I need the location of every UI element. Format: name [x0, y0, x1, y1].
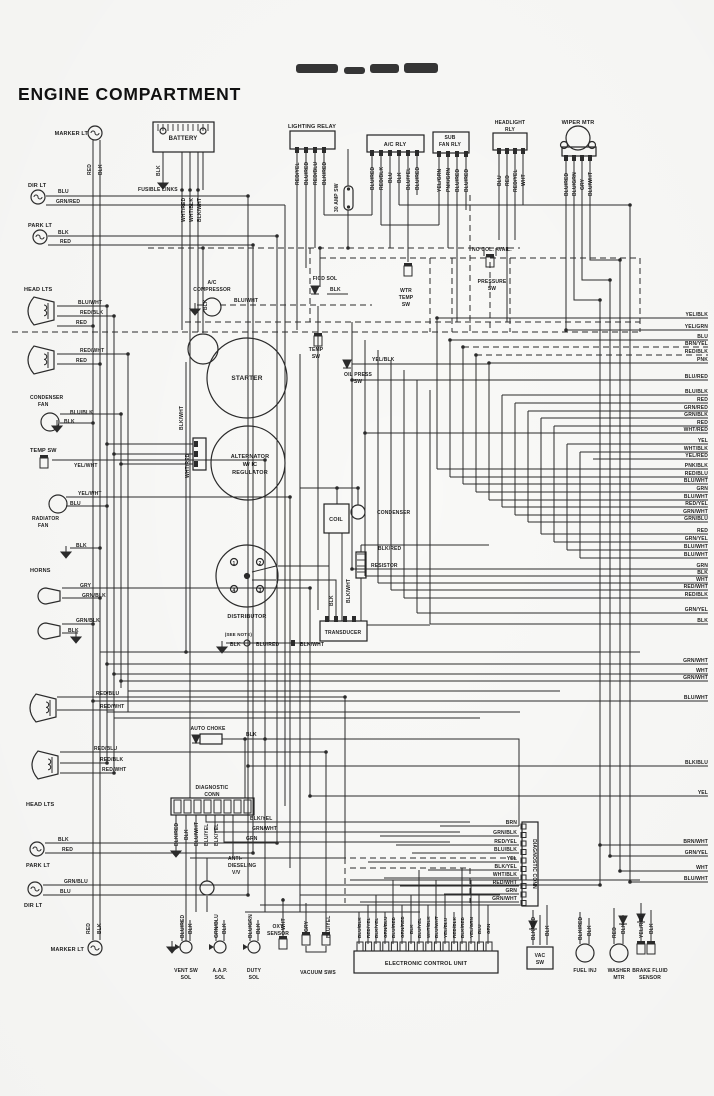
junction-dot — [608, 278, 612, 282]
wire-label: RED — [60, 239, 71, 245]
diagnostic-conn-left-box — [171, 798, 254, 815]
wire-label: BLK/YEL — [250, 816, 272, 822]
wire-label: TEMP SW — [30, 448, 57, 454]
wire-label: BLU/WHT — [434, 916, 439, 938]
connector-pin — [397, 150, 401, 156]
wire-label: FAN RLY — [439, 142, 461, 148]
wire-label: HEAD LTS — [26, 802, 54, 808]
connector-pin — [352, 616, 356, 622]
wire-label: PRESSURE — [478, 279, 507, 285]
redacted-header — [404, 63, 438, 73]
connector-cell — [477, 942, 483, 951]
wire-label: BLU/YEL — [406, 168, 412, 190]
wire-label: RED — [612, 927, 618, 938]
connector-pin — [334, 616, 338, 622]
lighting-relay-box — [290, 131, 335, 149]
wire-label: BLK — [68, 628, 79, 634]
wire-label: SENSOR — [639, 975, 661, 981]
junction-dot — [119, 679, 123, 683]
connector-cell — [426, 942, 432, 951]
wire-label: BLU/WHT — [684, 544, 708, 550]
wire-label: GRN/RED — [56, 199, 80, 205]
wire-label: RED — [697, 528, 708, 534]
junction-dot — [598, 298, 602, 302]
wire-label: PNK/GRN — [446, 168, 452, 192]
wire-label: REGULATOR — [232, 470, 268, 476]
headlight-relay-box — [493, 133, 527, 150]
wire-label: GRN/WHT — [252, 826, 277, 832]
wire-label: GRN/WHT — [683, 509, 708, 515]
wire-label: BLU/WHT — [234, 298, 258, 304]
connector-cell — [460, 942, 466, 951]
wire-label: BRN/YEL — [685, 341, 708, 347]
diode-icon — [343, 360, 351, 368]
wire-label: GRN/BLU — [684, 516, 708, 522]
junction-dot — [112, 314, 116, 318]
wire-label: 4 — [233, 588, 236, 594]
wire-label: BLK — [621, 923, 627, 934]
wire-label: FUEL INJ — [573, 968, 596, 974]
connector-cell — [486, 942, 492, 951]
connector-cell — [400, 942, 406, 951]
wire-label: CONDENSER — [30, 395, 64, 401]
wire-label: COIL — [329, 517, 343, 523]
wire-label: 3 — [259, 588, 262, 594]
wire-label: BLU/WHT — [684, 478, 708, 484]
wire-label: RED/BLU — [313, 161, 319, 185]
wire-label: YEL/GRN — [685, 324, 709, 330]
wire-label: WHT/BLK — [493, 872, 517, 878]
wire-label: HEAD LTS — [24, 287, 52, 293]
junction-dot — [363, 431, 367, 435]
wire-label: DIR LT — [24, 903, 43, 909]
junction-dot — [628, 203, 632, 207]
lamp-filament — [91, 131, 99, 135]
switch-plug-cap — [647, 941, 655, 944]
junction-dot — [246, 764, 250, 768]
junction-dot — [188, 188, 192, 192]
beam-coil — [44, 303, 48, 319]
ground-icon — [217, 641, 227, 653]
junction-dot — [275, 234, 279, 238]
wire-label: BLK — [222, 923, 228, 934]
switch-plug-icon — [404, 266, 412, 276]
wire-label: RED/WHT — [100, 704, 124, 710]
wire-label: DISTRIBUTOR — [227, 614, 266, 620]
switch-plug-icon — [637, 944, 645, 954]
wire-label: BLU/RED — [685, 374, 709, 380]
wire — [582, 161, 610, 280]
wire-label: BLK — [330, 287, 341, 293]
wire-label: RED/YEL — [494, 839, 517, 845]
wire-label: BLK — [76, 543, 87, 549]
junction-dot — [105, 442, 109, 446]
wire-label: 2 — [259, 561, 262, 567]
wire-label: BLU/RED — [415, 166, 421, 190]
wire-label: GRN — [246, 836, 258, 842]
solenoid-arrow — [175, 944, 180, 950]
wire-label: W/ IC — [243, 462, 258, 468]
wire-label: GRN/YEL — [685, 850, 708, 856]
wire-label: TEMP — [309, 347, 324, 353]
junction-dot — [335, 486, 339, 490]
wire-label: GRN/YEL — [685, 607, 708, 613]
junction-dot — [346, 246, 350, 250]
wire-label: BLK/RED — [378, 546, 402, 552]
connector-cell — [391, 942, 397, 951]
wire-label: RED — [62, 847, 73, 853]
wire-label: GRN — [696, 486, 708, 492]
wire-label: YEL/BLK — [686, 312, 709, 318]
wire-label: BLK — [329, 595, 335, 606]
wire-label: BLU/WHT — [684, 695, 708, 701]
wire-label: BLU/YEL — [204, 824, 210, 846]
wire-label: BLU/WHT — [684, 552, 708, 558]
beam-coil — [48, 757, 52, 773]
wire-label: 30 AMP SW — [334, 183, 340, 212]
wire — [206, 815, 470, 822]
wiring-diagram-page: ENGINE COMPARTMENT MARKER LTREDBLKBATTER… — [0, 0, 714, 1096]
wire-label: WHT — [696, 668, 708, 674]
junction-dot — [318, 246, 322, 250]
wire-label: BLK — [409, 924, 414, 934]
wire-label: BLU/YEL — [326, 916, 332, 938]
connector-pin — [406, 150, 410, 156]
wire-label: BLK/WHT — [300, 642, 324, 648]
sealed-beam-icon — [28, 297, 54, 325]
wire-label: PARK LT — [28, 223, 53, 229]
connector-pin — [588, 155, 592, 161]
wire-label: RED/BLU — [94, 746, 118, 752]
wire-label: CONDENSER — [377, 510, 411, 516]
wire-label: BLU/BLK — [685, 389, 708, 395]
wire-label: BLK — [58, 837, 69, 843]
switch-plug-icon — [40, 458, 48, 468]
solenoid-arrow — [243, 944, 248, 950]
junction-dot — [180, 188, 184, 192]
wire-label: SW — [488, 286, 496, 292]
connector-cell — [469, 942, 475, 951]
wire-label: BLK — [397, 172, 403, 183]
junction-dot — [618, 258, 622, 262]
wire-label: SOL — [215, 975, 226, 981]
page-title: ENGINE COMPARTMENT — [18, 84, 241, 104]
wire-label: BLU/RED — [564, 172, 570, 196]
wire-label: RED/BLU — [685, 471, 709, 477]
wire-label: BLU/GRN — [572, 172, 578, 196]
junction-dot — [564, 328, 568, 332]
wire-label: BRN/WHT — [683, 839, 708, 845]
wire-label: GRN/BLU — [214, 914, 220, 938]
fuel-injector-body — [576, 944, 594, 962]
wire-label: RED — [86, 923, 92, 934]
wire-label: BLK/RED — [531, 916, 537, 940]
wire-label: BLK — [697, 618, 708, 624]
connector-cell — [366, 942, 372, 951]
diagram-layer: MARKER LTREDBLKBATTERYFUSIBLE LINKSBLKWH… — [12, 63, 708, 981]
wire-label: BLK/YEL — [495, 864, 517, 870]
wire-label: GRN/WHT — [492, 896, 517, 902]
fuse-end — [347, 187, 350, 190]
wire-label: BLK — [58, 230, 69, 236]
auto-choke-box — [200, 734, 222, 744]
wire-label: ELECTRONIC CONTROL UNIT — [385, 961, 468, 967]
solenoid-arrow — [209, 944, 214, 950]
switch-plug-cap — [314, 333, 322, 336]
distributor-center — [245, 574, 250, 579]
wire-label: RED/YEL — [513, 169, 519, 192]
connector-pin — [322, 147, 326, 153]
wire-label: (SEE NOTE) — [225, 632, 253, 637]
solenoid-icon — [180, 941, 192, 953]
wire-label: WHT — [281, 918, 287, 930]
wire-label: GRY — [580, 178, 586, 190]
wire-label: MTR — [613, 975, 625, 981]
connector-cell — [234, 800, 241, 813]
wire-label: BLU/RED — [455, 168, 461, 192]
wire-label: HORNS — [30, 568, 51, 574]
wire-label: BLU — [60, 889, 71, 895]
junction-dot — [487, 361, 491, 365]
wire-label: BLU — [477, 924, 482, 934]
junction-dot — [435, 316, 439, 320]
wire-label: RED/WHT — [493, 880, 517, 886]
connector-pin — [572, 155, 576, 161]
wire-label: A/C RLY — [384, 142, 407, 148]
wire-label: YEL/BLU — [443, 918, 448, 938]
connector-pin — [505, 148, 509, 154]
wire-label: BLK — [98, 164, 104, 175]
connector-pin — [325, 616, 329, 622]
wire-label: TEMP — [399, 295, 414, 301]
wire-label: GRN/BLU — [64, 879, 88, 885]
lamp-filament — [34, 195, 42, 199]
junction-dot — [281, 898, 285, 902]
wire-label: SW — [402, 302, 410, 308]
wire-label: ALTERNATOR — [231, 454, 269, 460]
junction-dot — [598, 843, 602, 847]
wire-label: CONN — [204, 792, 220, 798]
wire-label: WHT/RED — [181, 197, 187, 222]
wire-label: WASHER — [608, 968, 631, 974]
connector-pin — [194, 451, 198, 457]
wire-label: BLK — [697, 570, 708, 576]
wire-label: DUTY — [247, 968, 262, 974]
wire-label: WHT/BLK — [684, 446, 708, 452]
wire-label: GRY — [304, 920, 310, 932]
junction-dot — [105, 304, 109, 308]
junction-dot — [201, 246, 205, 250]
junction-dot — [126, 352, 130, 356]
junction-dot — [308, 586, 312, 590]
junction-dot — [119, 412, 123, 416]
junction-dot — [98, 362, 102, 366]
wire-label: PNK — [697, 357, 708, 363]
connector-cell — [357, 942, 363, 951]
wire-label: GRN/YEL — [685, 536, 708, 542]
wire-label: RED — [76, 358, 87, 364]
sealed-beam-icon — [30, 694, 56, 722]
junction-dot — [91, 421, 95, 425]
wire-label: GRN/RED — [400, 916, 405, 938]
wire-label: RED/BLK — [685, 349, 709, 355]
connector-cell — [194, 800, 201, 813]
wire-label: BLK/WHT — [346, 579, 352, 603]
condenser-body — [351, 505, 365, 519]
wire-label: YEL/RED — [639, 915, 645, 938]
redacted-header — [296, 64, 338, 73]
horn-icon — [38, 588, 60, 604]
junction-dot — [608, 854, 612, 858]
wire-label: BLU/WHT — [78, 300, 102, 306]
beam-coil — [46, 700, 50, 716]
connector-pin — [194, 441, 198, 447]
connector-cell — [214, 800, 221, 813]
wire-label: SW — [354, 379, 362, 385]
wire-label: PARK LT — [26, 863, 51, 869]
wire-label: RED/BLK — [80, 310, 104, 316]
connector-pin — [295, 147, 299, 153]
wire-label: BLK — [545, 925, 551, 936]
beam-coil — [44, 352, 48, 368]
junction-dot — [184, 650, 188, 654]
switch-plug-icon — [647, 944, 655, 954]
junction-dot — [461, 345, 465, 349]
switch-plug-icon — [279, 939, 287, 949]
wire-label: GRN — [505, 888, 517, 894]
wire-label: WTR — [400, 288, 412, 294]
wire-label: YEL/GRN — [469, 917, 474, 938]
connector-pin — [291, 640, 295, 646]
junction-dot — [251, 243, 255, 247]
connector-cell — [409, 942, 415, 951]
wire-label: RED — [76, 320, 87, 326]
wire-label: STARTER — [231, 375, 262, 382]
wire-label: BLK — [246, 732, 257, 738]
junction-dot — [263, 737, 267, 741]
junction-dot — [308, 794, 312, 798]
starter-solenoid — [188, 334, 218, 364]
wire-label: SOL — [249, 975, 260, 981]
wire-label: BLK — [188, 923, 194, 934]
connector-cell — [443, 942, 449, 951]
wire — [278, 580, 336, 621]
radiator-fan-motor — [49, 495, 67, 513]
wire-label: DIR LT — [28, 183, 47, 189]
connector-cell — [452, 942, 458, 951]
wire-label: YEL/WHT — [74, 463, 98, 469]
wire-label: BLU/WHT — [684, 876, 708, 882]
wire-label: OIL PRESS — [344, 372, 372, 378]
wire-label: V/V — [232, 870, 241, 876]
wire-label: WHT — [521, 174, 527, 186]
connector-pin — [497, 148, 501, 154]
wire-label: BLU/WHT — [684, 494, 708, 500]
wire-label: BLU — [70, 501, 81, 507]
wire-label: YEL/GRN — [437, 168, 443, 192]
wire-label: WHT/BLK — [189, 198, 195, 222]
connector-cell — [434, 942, 440, 951]
wire-label: BLU/RED — [464, 168, 470, 192]
junction-dot — [350, 567, 354, 571]
connector-cell — [383, 942, 389, 951]
wire-label: FUSIBLE LINKS — [138, 187, 178, 193]
wire-label: RED/WHT — [684, 584, 708, 590]
junction-dot — [112, 672, 116, 676]
switch-plug-cap — [486, 254, 494, 257]
wire-label: DIESELING — [228, 863, 256, 869]
wire-label: RED/BLK — [100, 757, 124, 763]
wire-label: RED — [87, 164, 93, 175]
wire-label: BLK — [649, 923, 655, 934]
wire-label: BLU/BLK — [357, 917, 362, 938]
connector-pin — [194, 461, 198, 467]
wire-label: BLK/BLU — [685, 760, 708, 766]
wire-label: SOL — [181, 975, 192, 981]
sealed-beam-icon — [28, 346, 54, 374]
lamp-filament — [31, 887, 39, 891]
wire-label: DIAGNOSTIC CONN — [531, 839, 537, 889]
wire-label: RED/WHT — [80, 348, 104, 354]
redacted-header — [344, 67, 365, 74]
wire-label: BLU/RED — [370, 166, 376, 190]
wire-label: A.A.P. — [213, 968, 228, 974]
switch-plug-cap — [404, 263, 412, 266]
wire-label: COMPRESSOR — [193, 287, 231, 293]
wire-label: BLK/WHT — [179, 406, 185, 430]
connector-pin — [446, 151, 450, 157]
wire-label: BLK/RED — [578, 916, 584, 940]
wire-label: GRN/BLK — [684, 412, 708, 418]
wire-label: FAN — [38, 523, 49, 529]
junction-dot — [91, 699, 95, 703]
wire-label: BLU — [497, 175, 503, 186]
connector-cell — [184, 800, 191, 813]
wire — [590, 161, 620, 260]
wire-label: WHT — [696, 577, 708, 583]
wire-label: WHT/RED — [684, 427, 709, 433]
wire-label: BLK/RED — [460, 916, 465, 938]
junction-dot — [448, 338, 452, 342]
wire — [252, 566, 276, 572]
wire-label: BLK/YEL — [374, 918, 379, 938]
wire-label: WIPER MTR — [562, 120, 595, 126]
connector-cell — [417, 942, 423, 951]
wire-label: BATTERY — [169, 136, 198, 142]
switch-plug-icon — [302, 935, 310, 945]
junction-dot — [98, 546, 102, 550]
wire-label: BLU/GRN — [248, 914, 254, 938]
connector-pin — [313, 147, 317, 153]
wire-label: BLU/RED — [304, 161, 310, 185]
connector-pin — [437, 151, 441, 157]
wire-label: MARKER LT — [55, 131, 89, 137]
wire-label: YEL/RED — [685, 453, 708, 459]
wire-label: BLK — [203, 299, 209, 310]
wire-label: SUB — [444, 135, 455, 141]
junction-dot — [112, 452, 116, 456]
connector-cell — [374, 942, 380, 951]
wire-label: GRN — [696, 563, 708, 569]
wire-label: BLK — [184, 829, 190, 840]
wire-label: LIGHTING RELAY — [288, 124, 336, 130]
wire-label: GRN/WHT — [683, 675, 708, 681]
wire-label: BLU/YEL — [417, 918, 422, 938]
junction-dot — [105, 662, 109, 666]
wire-label: BLU — [388, 172, 394, 183]
wire-label: BLU/WHT — [588, 172, 594, 196]
connector-pin — [343, 616, 347, 622]
